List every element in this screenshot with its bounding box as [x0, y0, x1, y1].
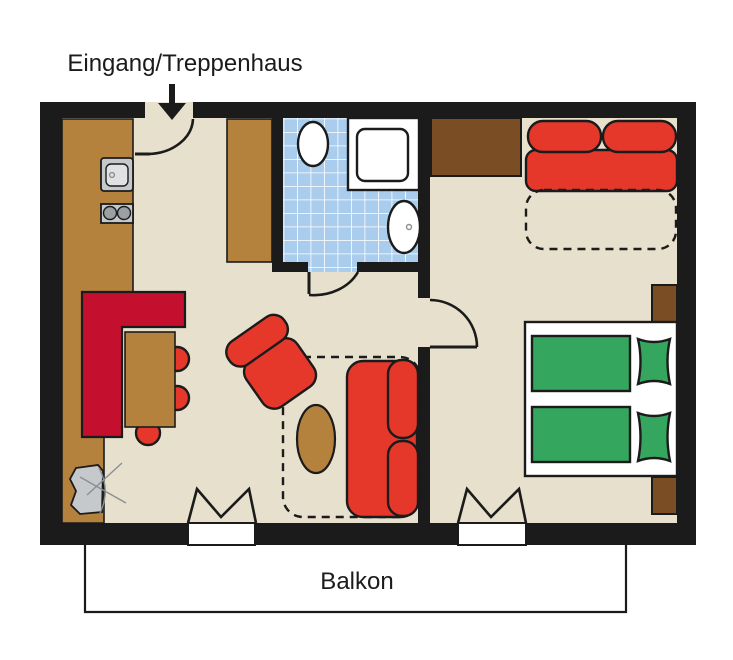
burner-left [104, 207, 117, 220]
mattress-2 [532, 407, 630, 462]
wall-top-right [193, 102, 696, 118]
balcony-label: Balkon [320, 570, 393, 594]
washbasin [388, 201, 420, 253]
toilet [298, 122, 328, 166]
wall-bottom-3 [526, 523, 696, 545]
kitchen-sink [101, 158, 133, 191]
wall-bathroom-bottom-left [272, 262, 308, 272]
bedroom-sofa-base [526, 150, 677, 191]
floor-plan-canvas [0, 0, 733, 660]
kitchen-counter-right [227, 119, 272, 262]
bedroom-sofa [526, 121, 677, 191]
wall-bottom-1 [40, 523, 188, 545]
window-left-sill [188, 523, 255, 545]
bedroom-sofa-cushion-2 [603, 121, 676, 152]
entrance-label: Eingang/Treppenhaus [67, 52, 302, 76]
double-bed [525, 322, 677, 476]
tv-body [70, 465, 103, 514]
wall-bathroom-left [272, 118, 283, 272]
dining-area [82, 292, 189, 445]
living-sofa-cushion-2 [388, 441, 418, 516]
wardrobe [431, 118, 521, 176]
living-sofa-cushion-1 [388, 360, 418, 438]
bathroom-door-tiles [308, 262, 357, 272]
shower-tray [357, 129, 408, 181]
pillow-2 [638, 413, 670, 461]
stove [101, 204, 133, 223]
bathroom [283, 118, 420, 272]
arrow-stem [169, 84, 175, 105]
wall-right [677, 102, 696, 545]
bedroom-sofa-cushion-1 [528, 121, 601, 152]
living-sofa [347, 360, 418, 517]
mattress-1 [532, 336, 630, 391]
wall-bottom-2 [255, 523, 458, 545]
floor-plan: Eingang/Treppenhaus Balkon [0, 0, 733, 660]
window-right-sill [458, 523, 526, 545]
burner-right [118, 207, 131, 220]
nightstand-top [652, 285, 677, 322]
pillow-1 [638, 339, 670, 384]
dining-table [125, 332, 175, 427]
nightstand-bottom [652, 477, 677, 514]
wall-left [40, 102, 62, 545]
coffee-table [297, 405, 335, 473]
